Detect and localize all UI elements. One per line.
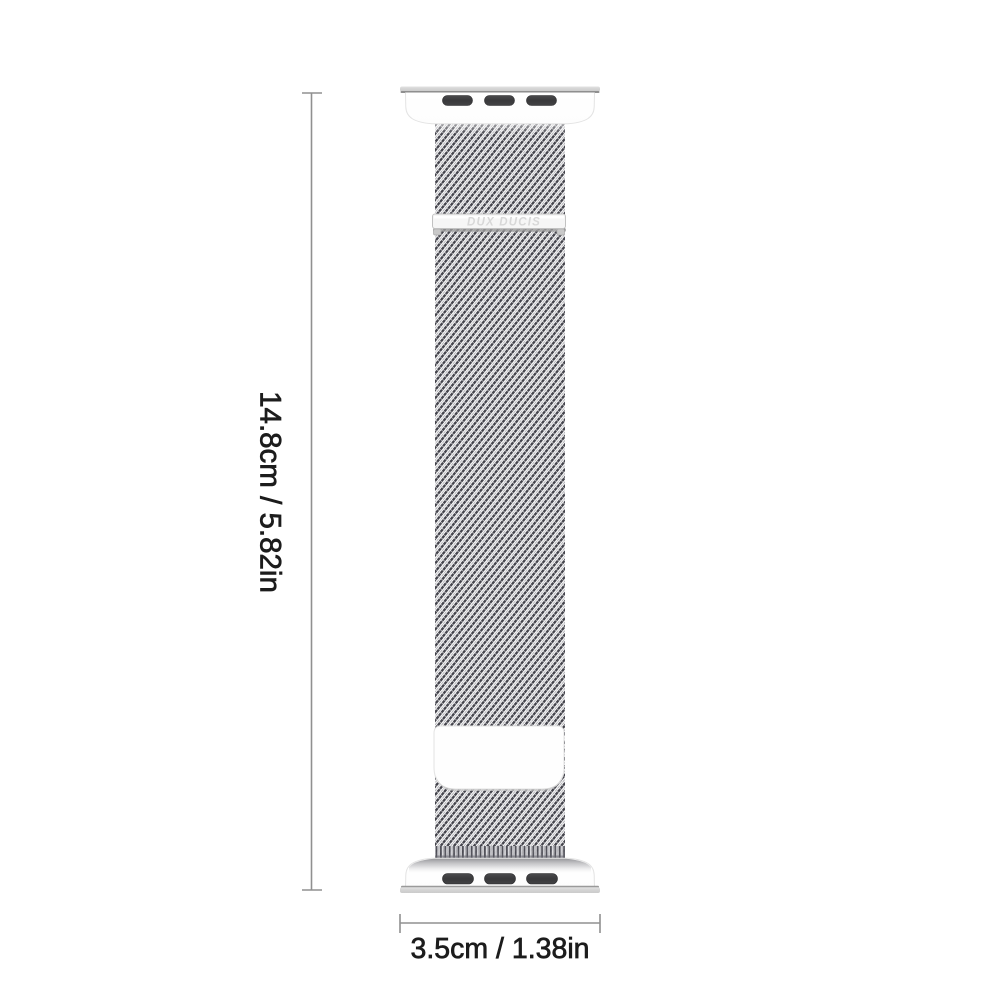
svg-text:14.8cm / 5.82in: 14.8cm / 5.82in bbox=[254, 391, 287, 593]
svg-text:DUX DUCIS: DUX DUCIS bbox=[467, 217, 541, 229]
svg-text:3.5cm / 1.38in: 3.5cm / 1.38in bbox=[410, 933, 589, 965]
